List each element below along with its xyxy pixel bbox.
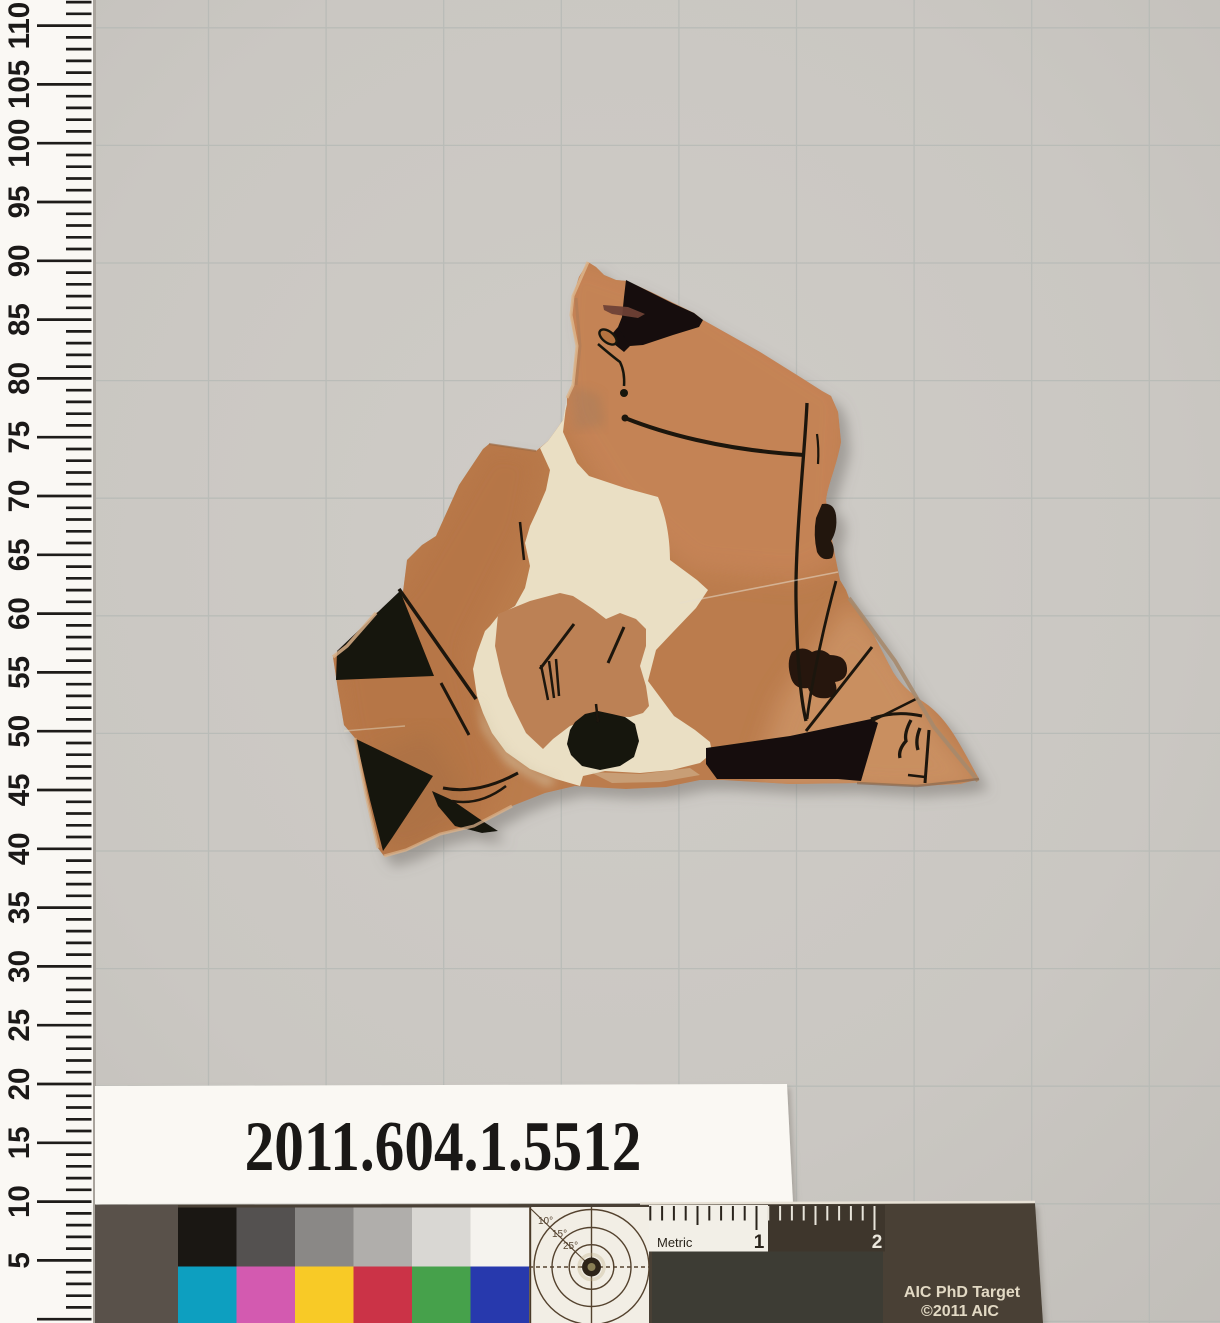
svg-text:90: 90 — [3, 244, 36, 277]
svg-text:©2011 AIC: ©2011 AIC — [921, 1303, 999, 1320]
svg-text:2011.604.1.5512: 2011.604.1.5512 — [245, 1108, 642, 1186]
svg-text:AIC PhD Target: AIC PhD Target — [904, 1284, 1021, 1301]
svg-text:30: 30 — [3, 950, 36, 983]
svg-text:110: 110 — [3, 2, 36, 50]
svg-text:25°: 25° — [563, 1241, 578, 1252]
svg-text:40: 40 — [3, 832, 36, 865]
svg-text:45: 45 — [3, 774, 36, 807]
svg-text:100: 100 — [3, 119, 36, 168]
svg-text:50: 50 — [3, 715, 36, 748]
svg-text:35: 35 — [3, 891, 36, 924]
svg-text:Metric: Metric — [657, 1235, 693, 1250]
svg-text:65: 65 — [3, 538, 36, 571]
svg-text:10°: 10° — [538, 1216, 553, 1227]
svg-text:85: 85 — [3, 303, 36, 336]
svg-text:15: 15 — [3, 1126, 36, 1159]
svg-text:1: 1 — [754, 1232, 765, 1253]
svg-text:60: 60 — [3, 597, 36, 630]
svg-text:80: 80 — [3, 362, 36, 395]
svg-text:25: 25 — [3, 1009, 36, 1042]
svg-text:15°: 15° — [552, 1229, 567, 1240]
svg-text:55: 55 — [3, 656, 36, 689]
svg-text:20: 20 — [3, 1068, 36, 1101]
svg-text:95: 95 — [3, 186, 36, 219]
svg-text:2: 2 — [872, 1232, 883, 1253]
svg-text:70: 70 — [3, 480, 36, 513]
svg-text:75: 75 — [3, 421, 36, 454]
svg-text:105: 105 — [3, 60, 36, 109]
svg-text:5: 5 — [3, 1252, 36, 1268]
svg-text:10: 10 — [3, 1185, 36, 1218]
